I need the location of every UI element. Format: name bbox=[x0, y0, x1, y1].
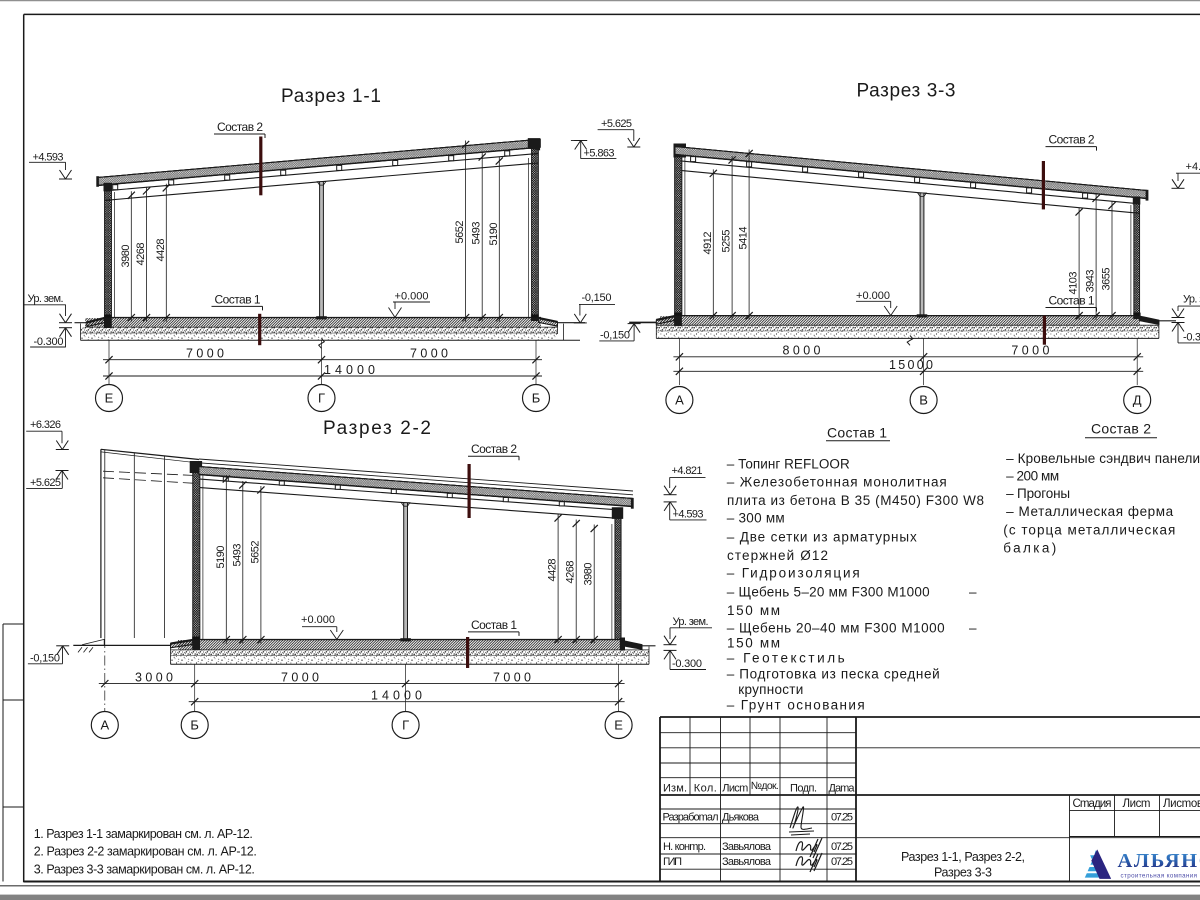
svg-text:– Щебень 20–40 мм F300 М1000: – Щебень 20–40 мм F300 М1000 bbox=[727, 621, 945, 636]
svg-text:(с торца металлическая: (с торца металлическая bbox=[1003, 523, 1175, 538]
svg-text:3655: 3655 bbox=[1101, 268, 1113, 291]
svg-text:Состав 1: Состав 1 bbox=[1049, 294, 1095, 308]
svg-text:+4.593: +4.593 bbox=[33, 152, 64, 164]
svg-text:4268: 4268 bbox=[135, 243, 147, 266]
svg-text:3980: 3980 bbox=[583, 563, 595, 586]
svg-text:5493: 5493 bbox=[471, 222, 483, 245]
svg-text:-0,150: -0,150 bbox=[600, 330, 630, 342]
svg-text:– Топинг REFLOOR: – Топинг REFLOOR bbox=[727, 456, 850, 471]
svg-text:Даmа: Даmа bbox=[829, 782, 856, 794]
svg-text:– Металлическая ферма: – Металлическая ферма bbox=[1006, 504, 1173, 519]
svg-text:строительная компания: строительная компания bbox=[1121, 872, 1198, 879]
svg-text:– Гидроизоляция: – Гидроизоляция bbox=[727, 566, 860, 581]
svg-text:В: В bbox=[919, 393, 928, 408]
svg-text:Состав 2: Состав 2 bbox=[217, 120, 263, 134]
svg-text:– 300 мм: – 300 мм bbox=[727, 511, 785, 526]
svg-text:Сmадия: Сmадия bbox=[1073, 798, 1112, 810]
svg-text:+0.000: +0.000 bbox=[395, 291, 429, 303]
svg-text:Завьялова: Завьялова bbox=[722, 841, 772, 853]
svg-text:+4.28: +4.28 bbox=[1186, 161, 1200, 173]
svg-text:Разрез 2-2: Разрез 2-2 bbox=[323, 418, 431, 439]
svg-text:+0.000: +0.000 bbox=[301, 614, 335, 626]
svg-text:-0.3: -0.3 bbox=[1183, 332, 1200, 344]
svg-text:Изм.: Изм. bbox=[663, 782, 687, 794]
svg-text:крупности: крупности bbox=[738, 682, 803, 697]
svg-text:4268: 4268 bbox=[565, 561, 577, 584]
svg-text:+6.326: +6.326 bbox=[30, 419, 61, 431]
svg-text:– Подготовка из песка средней: – Подготовка из песка средней bbox=[727, 666, 940, 681]
svg-text:А: А bbox=[100, 718, 109, 733]
svg-text:4912: 4912 bbox=[702, 232, 714, 255]
svg-text:5414: 5414 bbox=[738, 227, 750, 250]
svg-text:Разрез 3-3: Разрез 3-3 bbox=[934, 866, 992, 880]
svg-text:5652: 5652 bbox=[454, 221, 466, 244]
svg-text:– Геотекстиль: – Геотекстиль bbox=[727, 651, 845, 666]
svg-text:4428: 4428 bbox=[547, 559, 559, 582]
svg-text:+5.625: +5.625 bbox=[601, 118, 632, 130]
svg-text:АЛЬЯНС: АЛЬЯНС bbox=[1118, 850, 1200, 872]
svg-text:07.25: 07.25 bbox=[831, 856, 853, 868]
svg-text:5493: 5493 bbox=[231, 544, 243, 567]
svg-text:№док.: №док. bbox=[751, 780, 779, 792]
svg-text:Состав 1: Состав 1 bbox=[827, 425, 887, 441]
svg-text:ГИП: ГИП bbox=[663, 856, 682, 868]
svg-text:– 200 мм: – 200 мм bbox=[1006, 469, 1059, 484]
svg-text:+4.821: +4.821 bbox=[672, 465, 703, 477]
svg-text:3943: 3943 bbox=[1085, 270, 1097, 293]
svg-text:стержней Ø12: стержней Ø12 bbox=[727, 548, 828, 563]
svg-text:+5.625: +5.625 bbox=[30, 477, 61, 489]
svg-text:А: А bbox=[675, 393, 684, 408]
svg-text:Подп.: Подп. bbox=[790, 782, 817, 794]
svg-text:+5.863: +5.863 bbox=[584, 147, 615, 159]
svg-text:4428: 4428 bbox=[155, 239, 167, 262]
svg-text:– Кровельные сэндвич панели: – Кровельные сэндвич панели bbox=[1006, 451, 1200, 466]
svg-text:Лисmов: Лисmов bbox=[1163, 798, 1200, 810]
svg-text:– Щебень 5–20 мм F300 М1000: – Щебень 5–20 мм F300 М1000 bbox=[727, 585, 930, 600]
svg-text:Е: Е bbox=[614, 718, 623, 733]
svg-text:Г: Г bbox=[402, 718, 409, 733]
svg-text:Д: Д bbox=[1133, 393, 1142, 408]
svg-text:Б: Б bbox=[532, 391, 541, 406]
svg-text:-0,150: -0,150 bbox=[582, 292, 612, 304]
svg-text:Состав 1: Состав 1 bbox=[471, 618, 517, 632]
svg-text:Состав 1: Состав 1 bbox=[215, 292, 261, 306]
svg-text:–: – bbox=[969, 621, 977, 636]
svg-text:Лисm: Лисm bbox=[1123, 798, 1151, 810]
svg-text:-0.300: -0.300 bbox=[34, 336, 64, 348]
svg-text:5190: 5190 bbox=[215, 546, 227, 569]
svg-text:Ур. зем.: Ур. зем. bbox=[1183, 294, 1200, 306]
svg-text:Б: Б bbox=[190, 718, 199, 733]
svg-text:Состав 2: Состав 2 bbox=[1091, 421, 1151, 437]
svg-text:5652: 5652 bbox=[249, 541, 261, 564]
svg-text:Кол.: Кол. bbox=[694, 782, 717, 794]
svg-text:Завьялова: Завьялова bbox=[722, 856, 772, 868]
svg-text:+0.000: +0.000 bbox=[856, 290, 890, 302]
svg-text:2. Разрез 2-2 замаркирован см.: 2. Разрез 2-2 замаркирован см. л. АР-12. bbox=[34, 845, 257, 859]
svg-text:5190: 5190 bbox=[488, 223, 500, 246]
svg-text:плита из бетона В 35 (М450) F3: плита из бетона В 35 (М450) F300 W8 bbox=[727, 493, 984, 508]
svg-text:Лисm: Лисm bbox=[722, 782, 748, 794]
svg-text:Е: Е bbox=[105, 391, 114, 406]
svg-text:Разрез 3-3: Разрез 3-3 bbox=[857, 81, 956, 102]
svg-text:15000: 15000 bbox=[889, 358, 933, 372]
svg-text:–: – bbox=[969, 585, 977, 600]
svg-text:07.25: 07.25 bbox=[831, 841, 853, 853]
svg-text:Дьякова: Дьякова bbox=[722, 811, 760, 823]
svg-text:– Две сетки из арматурных: – Две сетки из арматурных bbox=[727, 530, 917, 545]
svg-text:-0.300: -0.300 bbox=[672, 658, 702, 670]
svg-text:Состав 2: Состав 2 bbox=[1049, 133, 1095, 147]
svg-text:4103: 4103 bbox=[1068, 272, 1080, 295]
svg-text:-0,150: -0,150 bbox=[30, 652, 60, 664]
svg-text:Разрабоmал: Разрабоmал bbox=[663, 811, 719, 823]
svg-text:Разрез 1-1, Разрез 2-2,: Разрез 1-1, Разрез 2-2, bbox=[901, 850, 1025, 864]
svg-text:Состав 2: Состав 2 bbox=[471, 442, 517, 456]
svg-text:Г: Г bbox=[318, 391, 325, 406]
svg-text:+4.593: +4.593 bbox=[673, 508, 704, 520]
svg-text:– Прогоны: – Прогоны bbox=[1006, 486, 1070, 501]
svg-text:3. Разрез 3-3 замаркирован см.: 3. Разрез 3-3 замаркирован см. л. АР-12. bbox=[34, 863, 255, 877]
svg-text:Разрез 1-1: Разрез 1-1 bbox=[281, 86, 381, 107]
svg-text:3980: 3980 bbox=[120, 245, 132, 268]
svg-text:5255: 5255 bbox=[721, 230, 733, 253]
svg-text:Ур. зем.: Ур. зем. bbox=[673, 616, 709, 628]
svg-text:07.25: 07.25 bbox=[831, 811, 853, 823]
svg-text:Ур. зем.: Ур. зем. bbox=[28, 293, 64, 305]
svg-text:Н. конmр.: Н. конmр. bbox=[663, 841, 706, 853]
svg-text:– Железобетонная монолитная: – Железобетонная монолитная bbox=[727, 475, 947, 490]
svg-text:1. Разрез 1-1 замаркирован см.: 1. Разрез 1-1 замаркирован см. л. АР-12. bbox=[34, 827, 253, 841]
